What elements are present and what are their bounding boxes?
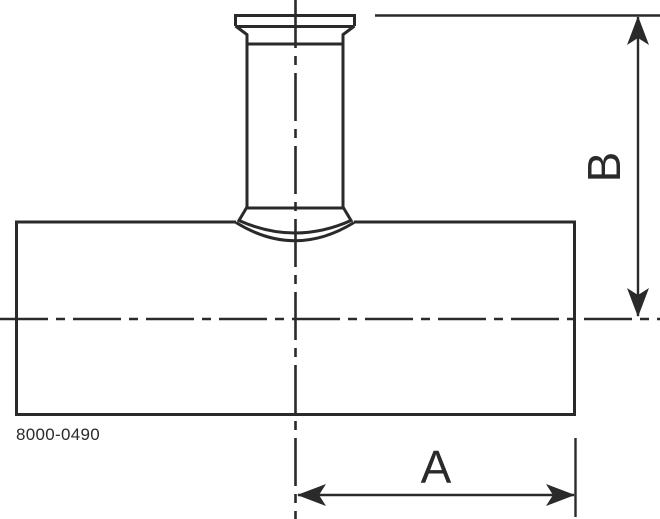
dimension-a-label: A	[421, 441, 452, 493]
technical-drawing-tee-fitting: B A 8000-0490	[0, 0, 660, 519]
dimension-a: A	[297, 438, 576, 517]
dimension-b: B	[375, 16, 660, 318]
part-number-label: 8000-0490	[16, 425, 100, 444]
drawing-sheet: B A 8000-0490	[0, 0, 660, 519]
dimension-b-label: B	[578, 152, 630, 183]
